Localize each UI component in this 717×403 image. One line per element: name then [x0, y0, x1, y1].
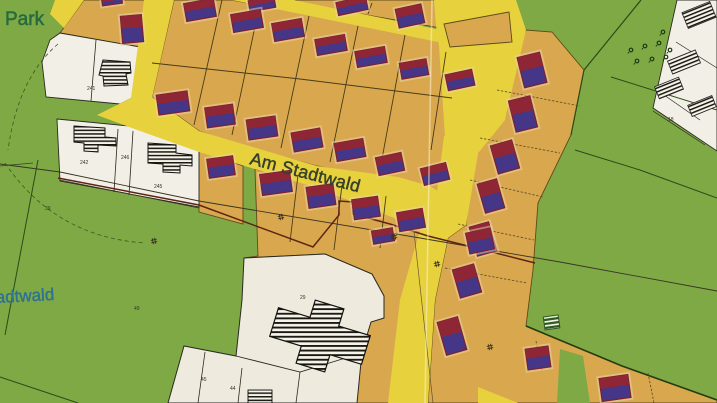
svg-text:29: 29: [300, 295, 306, 301]
svg-text:245: 245: [154, 184, 163, 190]
svg-text:49: 49: [134, 306, 140, 312]
svg-text:44: 44: [230, 386, 236, 392]
svg-text:Park: Park: [5, 9, 45, 30]
svg-text:246: 246: [121, 155, 130, 161]
svg-text:adtwald: adtwald: [0, 285, 55, 307]
svg-text:241: 241: [87, 86, 96, 92]
svg-text:18: 18: [668, 117, 674, 123]
svg-text:242: 242: [80, 160, 89, 166]
svg-text:45: 45: [201, 377, 207, 383]
svg-text:39: 39: [45, 206, 51, 212]
